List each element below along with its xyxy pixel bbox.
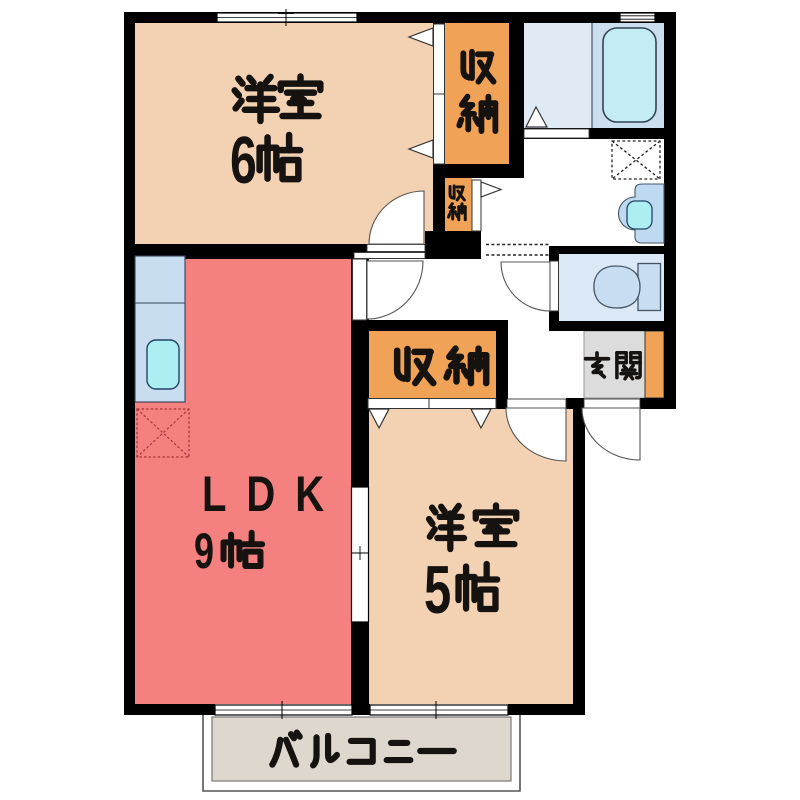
svg-text:5: 5 (424, 551, 451, 628)
svg-text:9: 9 (194, 524, 214, 579)
svg-text:6: 6 (230, 123, 257, 198)
svg-text:LDK: LDK (202, 466, 344, 522)
